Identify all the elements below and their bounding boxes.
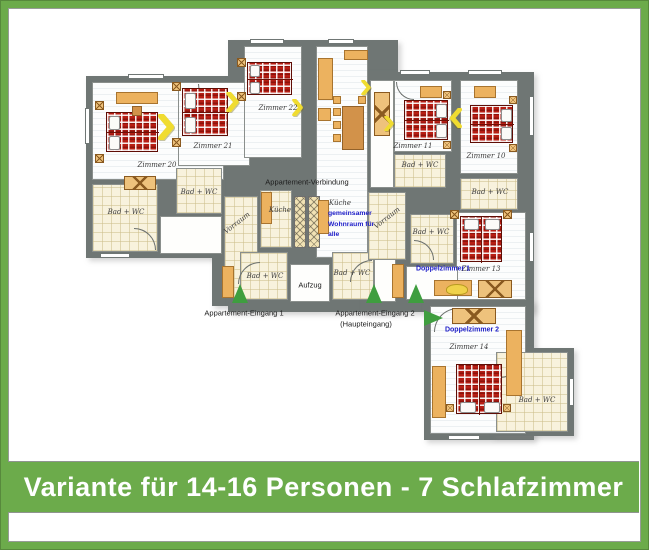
outer-border: [0, 0, 649, 550]
page: { "banner": { "title": "Variante für 14-…: [0, 0, 649, 550]
